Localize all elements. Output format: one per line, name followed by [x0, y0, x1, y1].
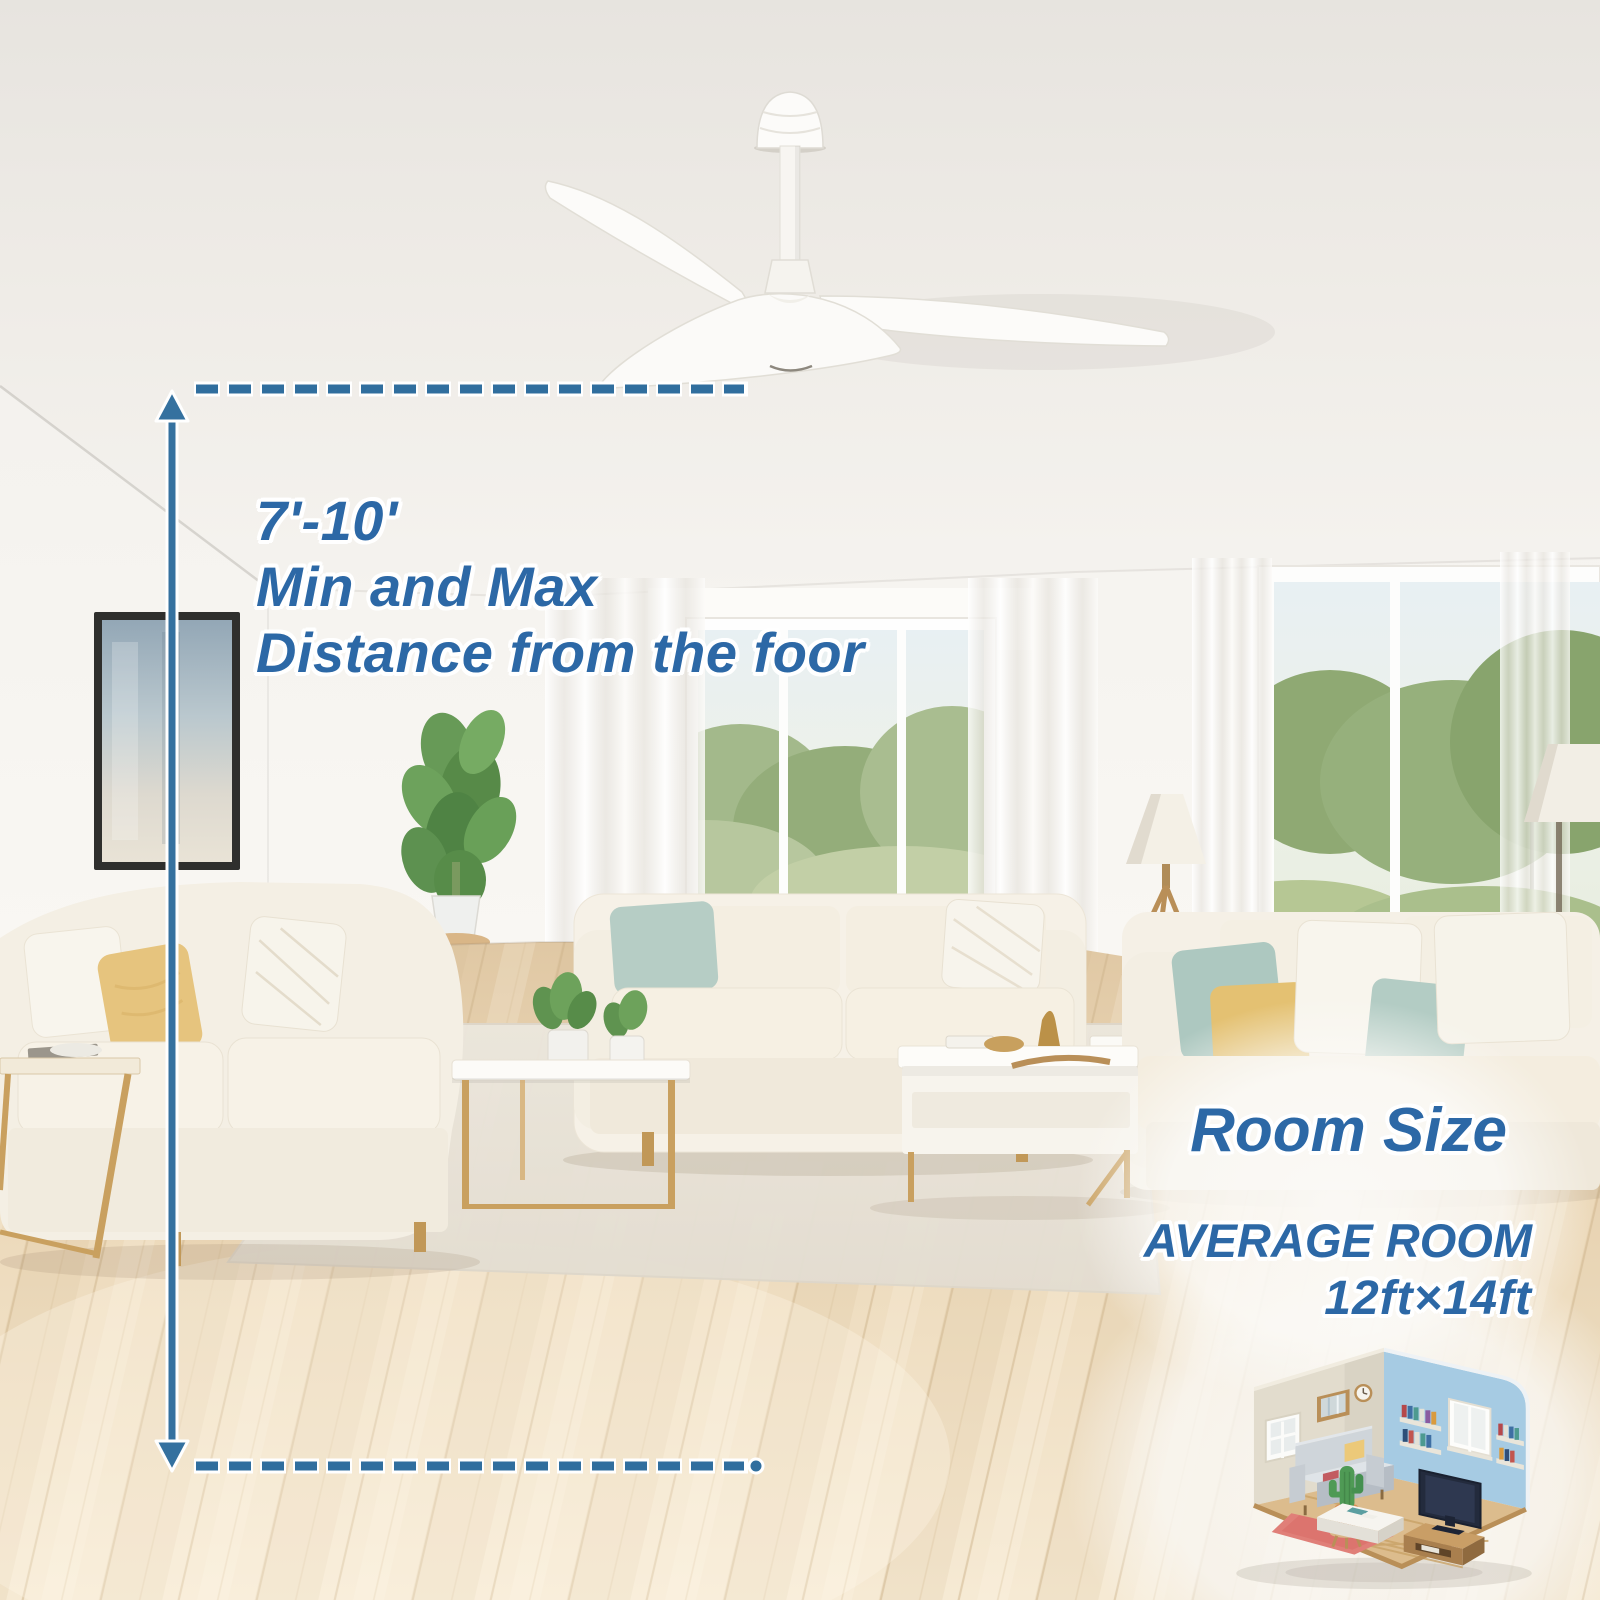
throw-pillow: [241, 915, 348, 1032]
iso-wall-clock: [1355, 1385, 1371, 1401]
throw-pillow: [1434, 912, 1570, 1045]
fan-mounting-infographic: 7'-10' Min and Max Distance from the foo…: [0, 0, 1600, 1600]
average-room-label: AVERAGE ROOM: [1144, 1216, 1532, 1266]
mounting-range-text: 7'-10': [256, 488, 864, 554]
fan-motor: [765, 260, 815, 293]
mounting-minmax-text: Min and Max: [256, 554, 864, 620]
mounting-floor-text: Distance from the foor: [256, 620, 864, 686]
sofa-left: [0, 882, 480, 1280]
room-dimensions-label: 12ft×14ft: [1144, 1274, 1532, 1324]
throw-pillow: [609, 900, 719, 995]
room-size-heading: Room Size: [1144, 1102, 1507, 1160]
iso-window: [1447, 1399, 1492, 1461]
iso-window: [1266, 1413, 1300, 1462]
mounting-distance-label: 7'-10' Min and Max Distance from the foo…: [256, 488, 864, 686]
throw-pillow: [941, 899, 1045, 994]
room-size-block: Room Size AVERAGE ROOM 12ft×14ft: [1144, 1102, 1532, 1324]
isometric-room-illustration: [1190, 1330, 1578, 1596]
